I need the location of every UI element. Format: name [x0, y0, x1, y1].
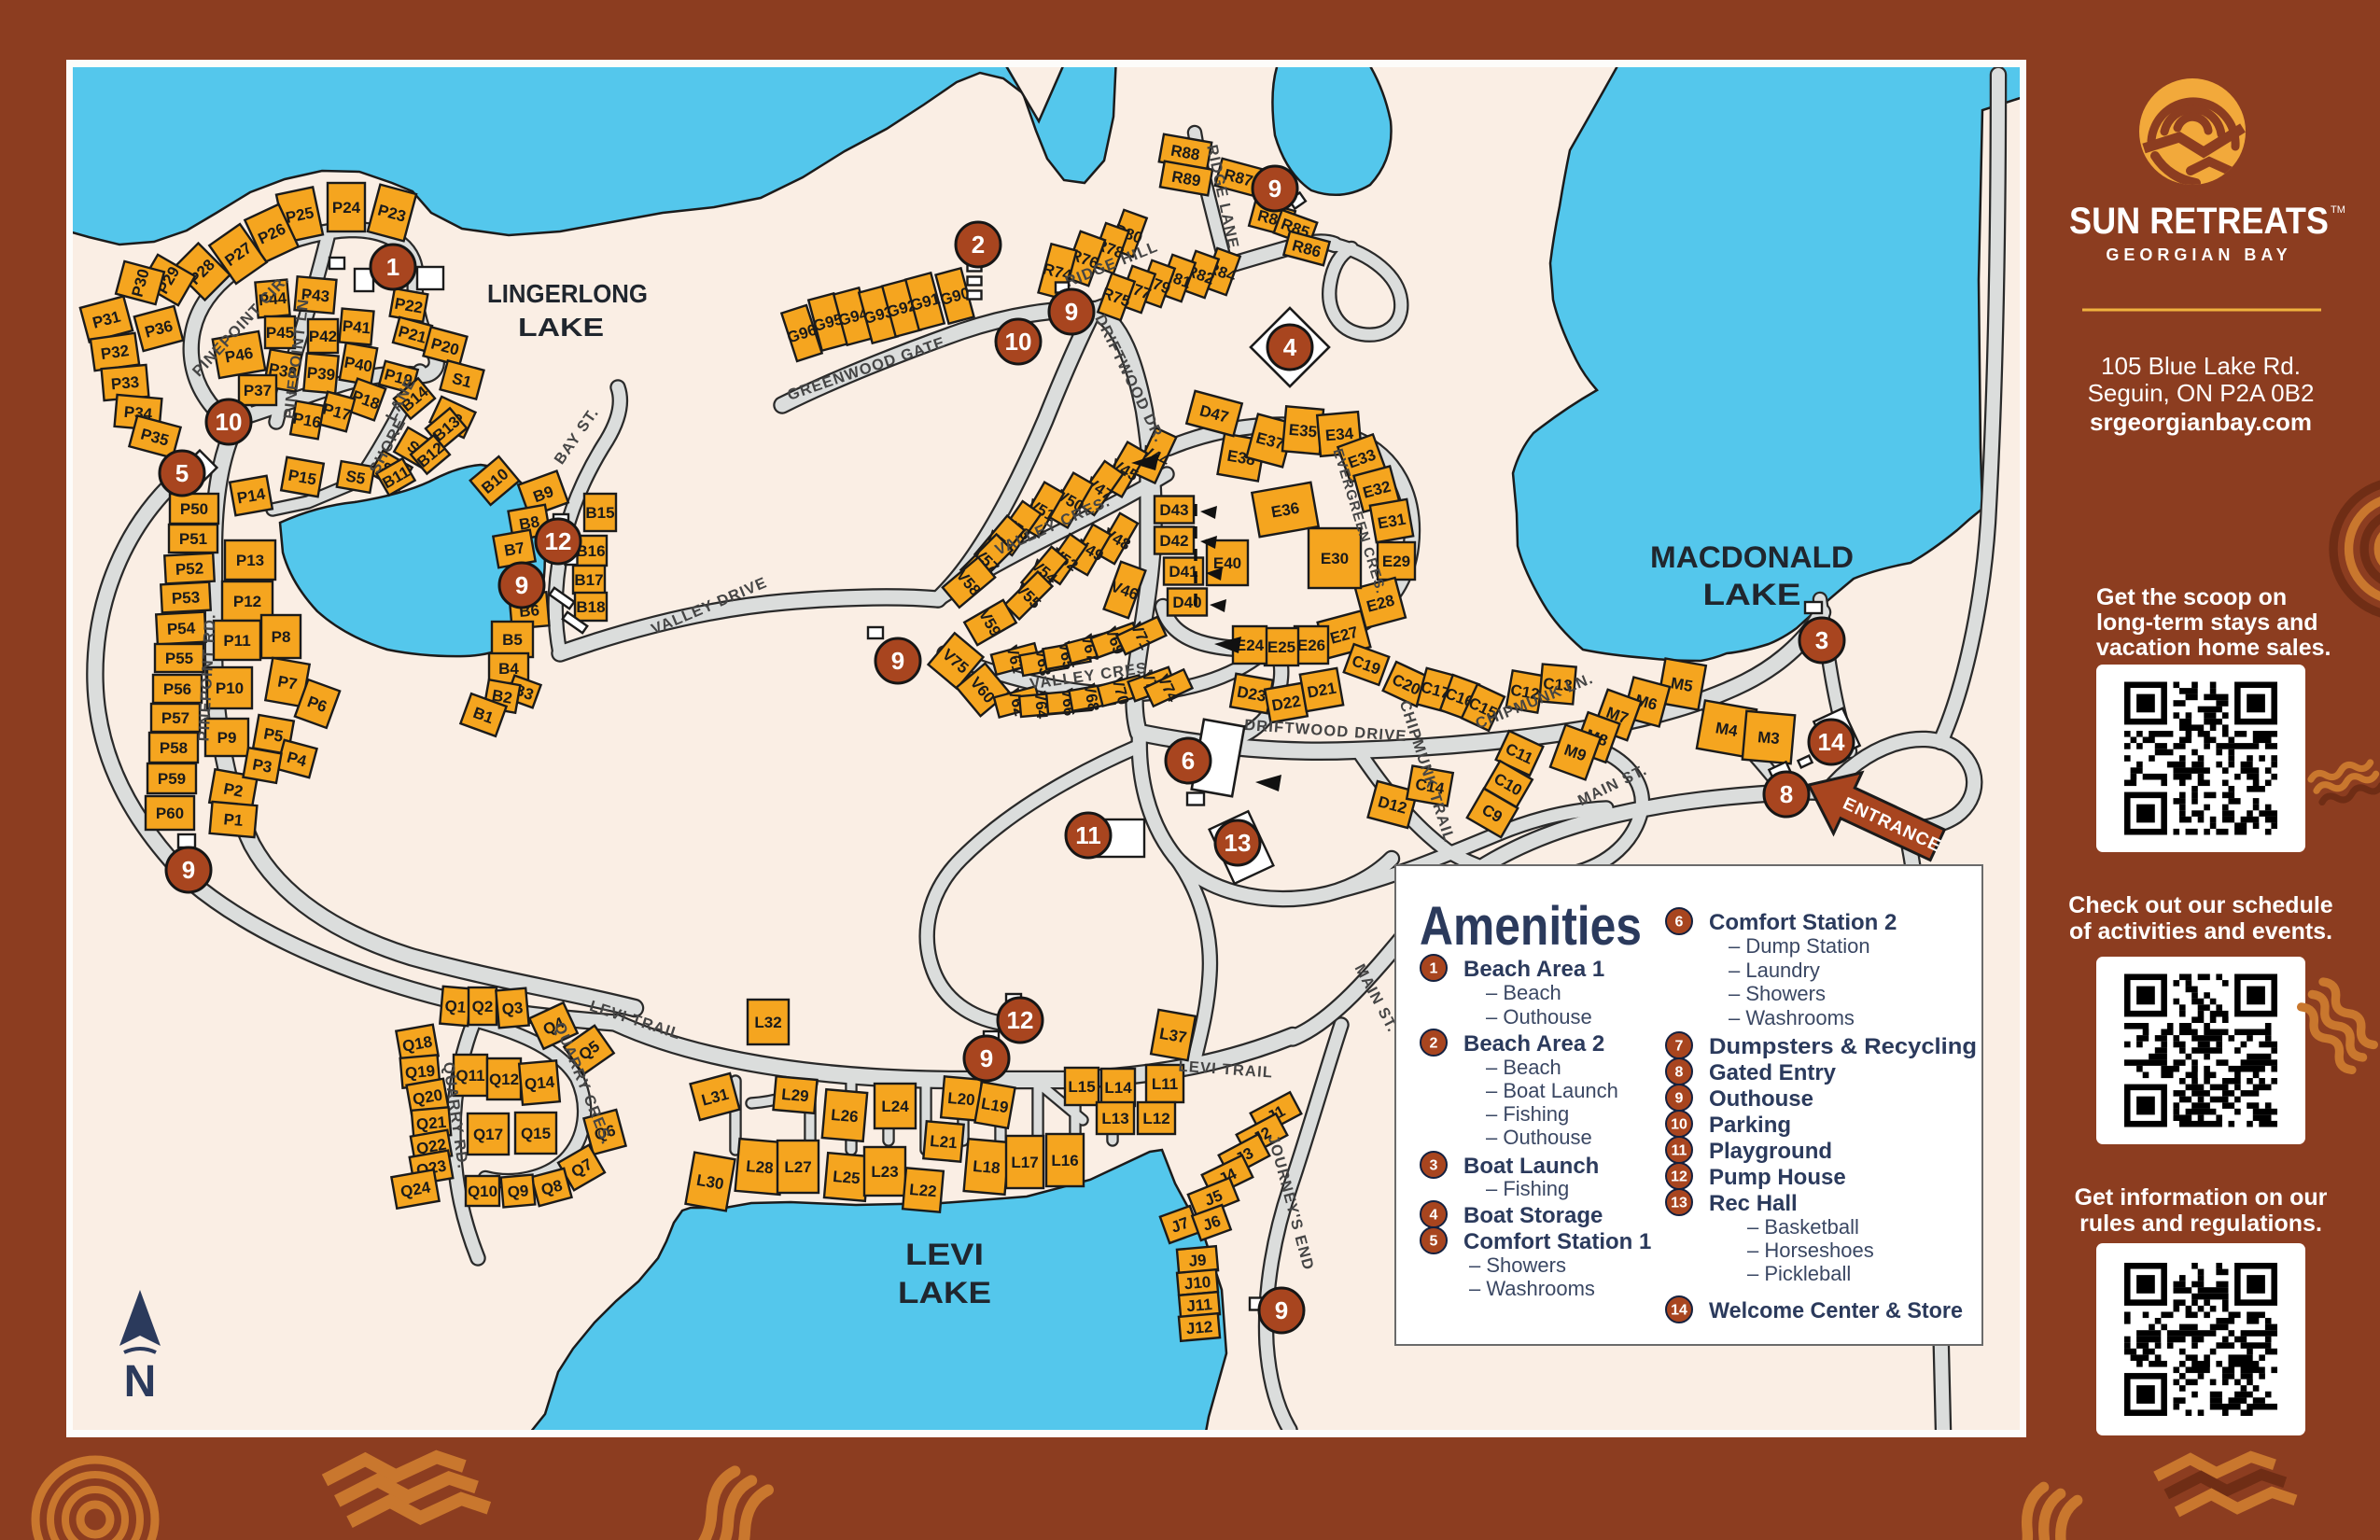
svg-text:6: 6 — [1182, 747, 1195, 775]
svg-text:B15: B15 — [585, 504, 614, 522]
svg-text:Seguin, ON P2A 0B2: Seguin, ON P2A 0B2 — [2088, 379, 2315, 407]
svg-text:11: 11 — [1075, 821, 1101, 849]
svg-text:10: 10 — [1671, 1117, 1687, 1133]
svg-text:P5: P5 — [262, 724, 285, 745]
svg-text:S5: S5 — [344, 467, 367, 487]
svg-text:Q9: Q9 — [507, 1182, 529, 1201]
svg-text:E26: E26 — [1297, 637, 1325, 654]
svg-text:Get the scoop on: Get the scoop on — [2096, 584, 2287, 610]
svg-text:– Outhouse: – Outhouse — [1486, 1126, 1592, 1149]
svg-text:rules and regulations.: rules and regulations. — [2079, 1211, 2322, 1237]
svg-text:9: 9 — [182, 856, 195, 884]
svg-text:Q19: Q19 — [404, 1062, 436, 1083]
svg-text:– Basketball: – Basketball — [1747, 1215, 1859, 1239]
svg-text:P53: P53 — [171, 588, 200, 608]
svg-text:M5: M5 — [1670, 674, 1695, 695]
svg-text:9: 9 — [1275, 1296, 1288, 1324]
svg-text:14: 14 — [1818, 728, 1845, 756]
svg-text:8: 8 — [1780, 780, 1793, 808]
svg-text:GEORGIAN BAY: GEORGIAN BAY — [2106, 245, 2291, 264]
svg-text:P7: P7 — [276, 672, 299, 693]
svg-text:LINGERLONG: LINGERLONG — [487, 279, 648, 308]
svg-text:12: 12 — [545, 527, 572, 555]
svg-text:– Washrooms: – Washrooms — [1469, 1277, 1595, 1300]
svg-text:– Pickleball: – Pickleball — [1747, 1262, 1851, 1285]
svg-text:D43: D43 — [1159, 501, 1188, 519]
svg-text:3: 3 — [1815, 626, 1828, 654]
svg-text:P52: P52 — [175, 559, 203, 579]
svg-text:Comfort Station 1: Comfort Station 1 — [1463, 1229, 1651, 1254]
svg-text:srgeorgianbay.com: srgeorgianbay.com — [2090, 408, 2312, 436]
svg-text:Amenities: Amenities — [1420, 896, 1642, 957]
svg-text:Dumpsters & Recycling: Dumpsters & Recycling — [1709, 1034, 1977, 1059]
svg-text:13: 13 — [1671, 1196, 1687, 1211]
svg-text:L22: L22 — [909, 1181, 938, 1200]
svg-text:E30: E30 — [1321, 550, 1349, 567]
svg-text:– Washrooms: – Washrooms — [1729, 1006, 1855, 1029]
svg-text:13: 13 — [1225, 829, 1252, 857]
svg-text:P60: P60 — [156, 805, 184, 822]
svg-text:P39: P39 — [306, 364, 336, 385]
svg-text:L15: L15 — [1068, 1078, 1095, 1096]
svg-text:5: 5 — [1430, 1234, 1438, 1250]
svg-text:P58: P58 — [160, 739, 188, 757]
svg-text:9: 9 — [1065, 298, 1078, 326]
svg-text:Check out our schedule: Check out our schedule — [2068, 892, 2332, 918]
svg-text:P33: P33 — [110, 373, 140, 394]
svg-text:5: 5 — [175, 459, 189, 487]
svg-text:– Boat Launch: – Boat Launch — [1486, 1079, 1618, 1102]
svg-text:J10: J10 — [1183, 1273, 1211, 1293]
svg-text:Welcome Center & Store: Welcome Center & Store — [1709, 1298, 1963, 1323]
svg-text:Q2: Q2 — [472, 998, 494, 1015]
svg-text:B17: B17 — [574, 571, 603, 589]
svg-text:E25: E25 — [1267, 638, 1295, 656]
svg-text:P59: P59 — [158, 770, 186, 788]
svg-text:P24: P24 — [332, 199, 361, 217]
svg-text:J12: J12 — [1185, 1318, 1213, 1337]
svg-text:Boat Launch: Boat Launch — [1463, 1154, 1599, 1179]
svg-text:Beach Area 1: Beach Area 1 — [1463, 957, 1604, 982]
svg-text:12: 12 — [1671, 1169, 1687, 1185]
svg-text:– Fishing: – Fishing — [1486, 1102, 1569, 1126]
svg-text:D42: D42 — [1159, 532, 1188, 550]
svg-text:L26: L26 — [831, 1106, 860, 1126]
svg-text:Q12: Q12 — [489, 1071, 519, 1088]
svg-text:LAKE: LAKE — [518, 313, 604, 342]
svg-text:– Outhouse: – Outhouse — [1486, 1005, 1592, 1029]
svg-text:P13: P13 — [236, 552, 264, 569]
svg-text:P37: P37 — [244, 382, 272, 399]
svg-text:10: 10 — [216, 408, 243, 436]
svg-text:P10: P10 — [216, 679, 244, 697]
svg-text:– Beach: – Beach — [1486, 1056, 1561, 1079]
svg-text:– Horseshoes: – Horseshoes — [1747, 1239, 1874, 1262]
svg-text:P9: P9 — [217, 729, 237, 747]
svg-text:105 Blue Lake Rd.: 105 Blue Lake Rd. — [2101, 352, 2301, 380]
svg-text:M3: M3 — [1757, 728, 1780, 748]
svg-text:P11: P11 — [223, 632, 250, 650]
svg-text:2: 2 — [1430, 1036, 1438, 1052]
svg-text:L14: L14 — [1104, 1079, 1132, 1097]
svg-text:3: 3 — [1430, 1158, 1438, 1174]
svg-text:LAKE: LAKE — [898, 1276, 991, 1309]
svg-text:Gated Entry: Gated Entry — [1709, 1060, 1837, 1085]
svg-text:P1: P1 — [223, 810, 244, 830]
svg-text:Boat Storage: Boat Storage — [1463, 1203, 1603, 1228]
svg-text:– Dump Station: – Dump Station — [1729, 934, 1870, 958]
svg-text:D41: D41 — [1169, 563, 1197, 581]
svg-text:Comfort Station 2: Comfort Station 2 — [1709, 910, 1897, 935]
svg-text:P57: P57 — [161, 709, 189, 727]
svg-text:6: 6 — [1675, 915, 1684, 931]
svg-text:TM: TM — [2331, 204, 2345, 216]
svg-text:9: 9 — [1268, 175, 1281, 203]
svg-text:N: N — [124, 1357, 157, 1407]
svg-text:E29: E29 — [1382, 553, 1410, 570]
svg-text:LAKE: LAKE — [1703, 578, 1801, 611]
svg-text:9: 9 — [891, 647, 904, 675]
svg-text:Pump House: Pump House — [1709, 1165, 1846, 1190]
svg-text:L18: L18 — [973, 1157, 1001, 1177]
svg-text:L32: L32 — [754, 1014, 781, 1031]
svg-text:14: 14 — [1671, 1303, 1687, 1319]
svg-text:L17: L17 — [1011, 1154, 1038, 1171]
svg-text:1: 1 — [386, 253, 399, 281]
svg-text:L20: L20 — [947, 1089, 976, 1109]
svg-text:9: 9 — [980, 1044, 993, 1072]
svg-text:L28: L28 — [746, 1157, 775, 1177]
svg-text:– Laundry: – Laundry — [1729, 959, 1820, 982]
svg-text:P50: P50 — [180, 500, 208, 518]
svg-text:P54: P54 — [166, 619, 196, 638]
svg-text:Rec Hall: Rec Hall — [1709, 1191, 1798, 1216]
svg-text:7: 7 — [1675, 1039, 1684, 1055]
svg-text:P41: P41 — [342, 317, 371, 338]
svg-text:– Beach: – Beach — [1486, 981, 1561, 1004]
svg-text:P56: P56 — [163, 680, 191, 698]
svg-text:L21: L21 — [930, 1132, 959, 1152]
svg-text:Get information on our: Get information on our — [2075, 1184, 2328, 1211]
svg-text:SUN RETREATS: SUN RETREATS — [2069, 201, 2329, 242]
svg-text:10: 10 — [1005, 328, 1032, 356]
svg-text:12: 12 — [1007, 1006, 1034, 1034]
svg-text:1: 1 — [1430, 961, 1438, 977]
svg-text:Q14: Q14 — [524, 1073, 555, 1094]
svg-text:L11: L11 — [1152, 1075, 1178, 1093]
svg-text:Q15: Q15 — [521, 1125, 551, 1142]
svg-text:L12: L12 — [1142, 1110, 1169, 1127]
svg-text:P2: P2 — [222, 779, 245, 800]
svg-text:D40: D40 — [1172, 594, 1201, 611]
svg-text:Parking: Parking — [1709, 1113, 1791, 1138]
svg-text:B5: B5 — [502, 631, 523, 649]
svg-text:– Showers: – Showers — [1729, 982, 1826, 1005]
svg-text:P3: P3 — [251, 755, 273, 776]
svg-text:P8: P8 — [272, 628, 291, 646]
svg-text:L16: L16 — [1051, 1152, 1078, 1169]
svg-text:9: 9 — [1675, 1091, 1684, 1107]
svg-text:L29: L29 — [781, 1085, 810, 1105]
svg-text:L25: L25 — [833, 1168, 861, 1187]
svg-text:vacation home sales.: vacation home sales. — [2096, 635, 2331, 661]
svg-text:Q17: Q17 — [473, 1126, 503, 1143]
svg-text:L27: L27 — [784, 1158, 811, 1176]
svg-text:Outhouse: Outhouse — [1709, 1086, 1813, 1112]
svg-text:4: 4 — [1430, 1208, 1438, 1224]
svg-text:8: 8 — [1675, 1065, 1684, 1081]
svg-text:– Showers: – Showers — [1469, 1253, 1566, 1277]
svg-text:P55: P55 — [165, 650, 193, 667]
svg-text:B7: B7 — [503, 539, 526, 559]
svg-text:2: 2 — [972, 231, 985, 259]
svg-text:L23: L23 — [871, 1163, 898, 1181]
svg-text:long-term stays and: long-term stays and — [2096, 609, 2318, 636]
svg-text:L13: L13 — [1101, 1110, 1128, 1127]
svg-text:of activities and events.: of activities and events. — [2069, 918, 2332, 945]
svg-text:11: 11 — [1672, 1143, 1687, 1159]
svg-text:Q3: Q3 — [501, 999, 524, 1018]
svg-text:Q10: Q10 — [468, 1183, 497, 1200]
svg-text:– Fishing: – Fishing — [1486, 1177, 1569, 1200]
svg-text:LEVI: LEVI — [905, 1238, 984, 1271]
svg-text:Q1: Q1 — [444, 997, 467, 1016]
svg-text:J11: J11 — [1186, 1295, 1213, 1315]
svg-text:P51: P51 — [179, 530, 207, 548]
svg-text:E35: E35 — [1288, 421, 1318, 441]
svg-text:Beach Area 2: Beach Area 2 — [1463, 1031, 1604, 1057]
svg-text:B18: B18 — [576, 598, 605, 616]
svg-text:Q11: Q11 — [455, 1067, 484, 1085]
svg-text:MACDONALD: MACDONALD — [1650, 540, 1854, 574]
svg-text:P42: P42 — [309, 328, 337, 345]
svg-text:P12: P12 — [233, 593, 261, 610]
svg-text:Playground: Playground — [1709, 1139, 1832, 1164]
svg-text:9: 9 — [515, 571, 528, 599]
svg-text:L24: L24 — [881, 1098, 909, 1115]
svg-text:4: 4 — [1283, 333, 1297, 361]
svg-text:J9: J9 — [1188, 1251, 1208, 1270]
